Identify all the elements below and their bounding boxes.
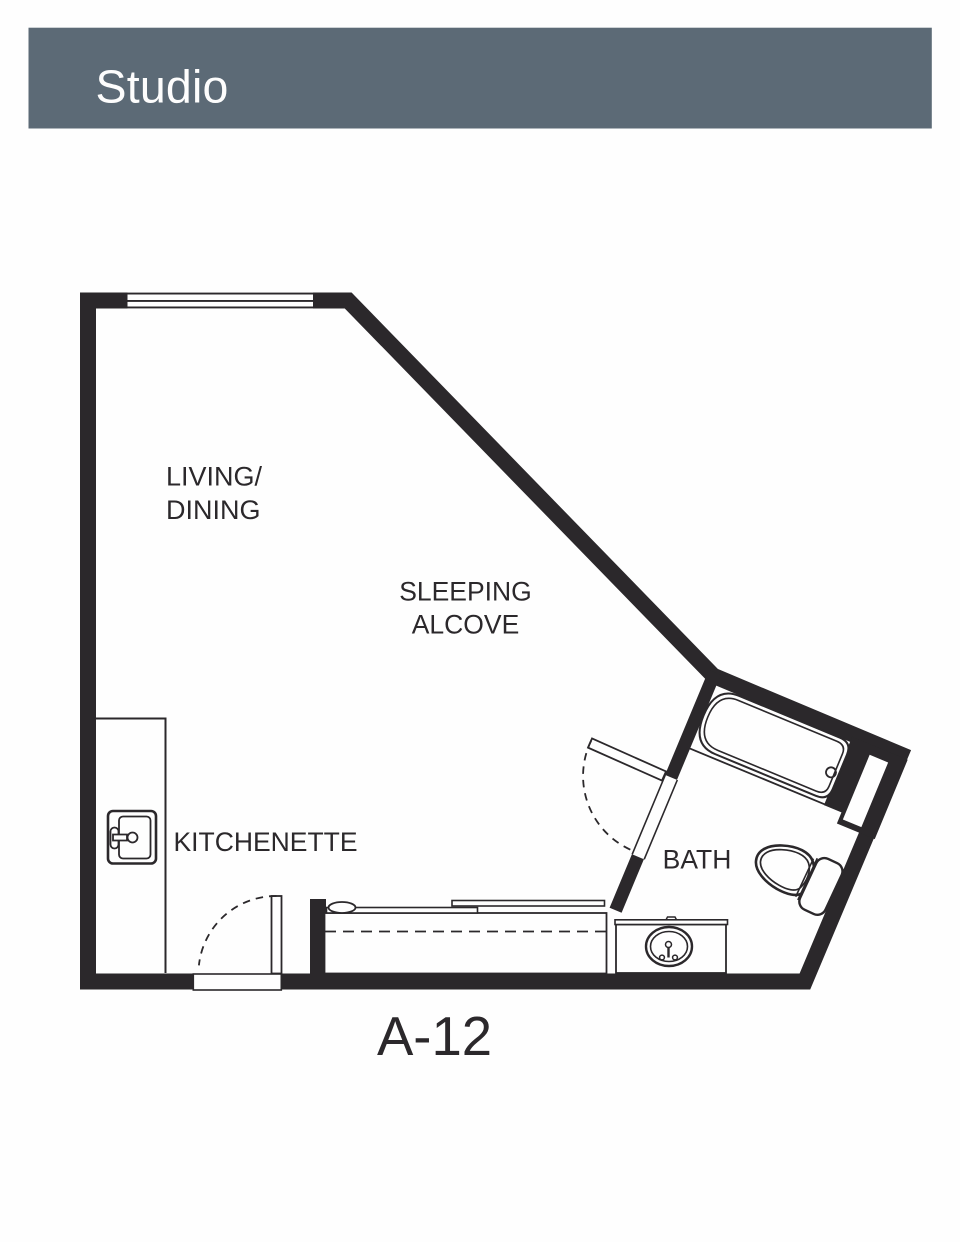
svg-text:Studio: Studio bbox=[96, 61, 229, 113]
svg-text:LIVING/: LIVING/ bbox=[166, 462, 263, 492]
svg-text:BATH: BATH bbox=[663, 845, 732, 875]
svg-text:DINING: DINING bbox=[166, 495, 261, 525]
svg-text:SLEEPING: SLEEPING bbox=[399, 577, 532, 607]
svg-text:KITCHENETTE: KITCHENETTE bbox=[173, 827, 357, 857]
svg-text:A-12: A-12 bbox=[377, 1006, 492, 1067]
svg-text:ALCOVE: ALCOVE bbox=[412, 610, 520, 640]
